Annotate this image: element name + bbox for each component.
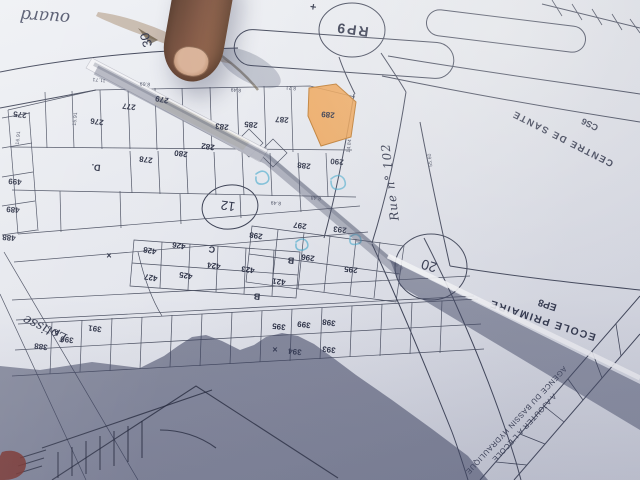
parcel-number: 424 bbox=[207, 260, 221, 270]
ecole-primaire-block: ECOLE PRIMAIRE EP8 bbox=[487, 280, 602, 344]
centre-de-sante-code: CS6 bbox=[580, 116, 600, 132]
dimension-label: 8.49 bbox=[270, 199, 281, 205]
parcel-number: 421 bbox=[272, 276, 286, 285]
parcel-number: 388 bbox=[34, 341, 48, 351]
mark-label: × bbox=[106, 252, 111, 261]
centre-de-sante-label: CENTRE DE SANTE bbox=[511, 108, 615, 167]
annotation-strip-text: A AJOUTER A L'ECOLE AGENCE DU BASSIN HYD… bbox=[463, 364, 578, 480]
dimension-label: 11.71 bbox=[92, 76, 106, 82]
dimension-label: 15.91 bbox=[73, 112, 79, 126]
parcel-number: 395 bbox=[272, 321, 286, 330]
annotation-line-2: AGENCE DU BASSIN HYDRAULIQUE bbox=[463, 364, 570, 477]
parcel-number: 296 bbox=[301, 252, 315, 262]
road-width-12: 12 bbox=[220, 199, 236, 214]
street-name-rue-102: Rue n° 102 bbox=[379, 142, 400, 221]
parcel-number: 394 bbox=[288, 346, 302, 355]
photo-of-cadastral-map: ouard + RP9 30 12 20 Rue n° 102 Lotisse … bbox=[0, 0, 640, 480]
parcel-number: 489 bbox=[6, 204, 20, 213]
dimension-label: 8.69 bbox=[139, 80, 150, 86]
parcel-number: 426 bbox=[172, 240, 187, 250]
handwritten-word: ouard bbox=[19, 6, 70, 26]
parcel-number: 298 bbox=[249, 230, 263, 240]
map-labels: ouard + RP9 30 12 20 Rue n° 102 Lotisse … bbox=[0, 0, 640, 480]
fingernail bbox=[171, 44, 212, 80]
mark-label: A bbox=[53, 327, 61, 337]
parcel-number: 425 bbox=[179, 270, 194, 280]
parcel-number: 290 bbox=[330, 156, 344, 165]
parcel-number: 288 bbox=[297, 160, 311, 169]
parcel-number: 488 bbox=[2, 232, 16, 241]
parcel-number: 499 bbox=[8, 176, 22, 185]
parcel-number: 282 bbox=[201, 141, 215, 151]
parcel-number: 427 bbox=[144, 272, 159, 282]
parcel-number: 276 bbox=[90, 116, 104, 126]
mark-label: D. bbox=[91, 162, 101, 172]
dimension-label: 16.91 bbox=[16, 131, 22, 145]
dimension-label: 8.21 bbox=[285, 84, 296, 90]
dimension-label: 14.84 bbox=[347, 139, 353, 153]
parcel-number: 297 bbox=[293, 220, 307, 230]
parcel-number: 295 bbox=[344, 264, 358, 273]
dimension-label: 55.60 bbox=[428, 153, 434, 167]
parcel-number: 423 bbox=[241, 264, 255, 274]
parcel-number: 391 bbox=[88, 323, 102, 333]
parcel-number: 280 bbox=[174, 148, 188, 158]
dimension-label: 8.48 bbox=[310, 194, 321, 200]
parcel-number: 393 bbox=[322, 344, 336, 353]
parcel-number: 275 bbox=[13, 109, 27, 118]
dimension-label: 8.49 bbox=[230, 86, 241, 92]
road-width-20: 20 bbox=[420, 257, 439, 275]
road-width-30: 30 bbox=[138, 31, 155, 49]
parcel-number: 390 bbox=[60, 334, 74, 344]
parcel-number: 277 bbox=[122, 101, 136, 110]
parcel-number: 398 bbox=[322, 317, 336, 327]
mark-label: B bbox=[253, 291, 260, 301]
annotation-line-1: A AJOUTER A L'ECOLE bbox=[471, 371, 578, 480]
parcel-number: 293 bbox=[333, 224, 347, 233]
parcel-number: 289 bbox=[321, 109, 335, 118]
parcel-number: 283 bbox=[215, 121, 229, 130]
parcel-number: 278 bbox=[139, 154, 153, 164]
parcel-number: 279 bbox=[155, 94, 170, 105]
mark-label: B bbox=[287, 255, 294, 265]
plus-mark: + bbox=[309, 2, 317, 14]
parcel-number: 287 bbox=[275, 115, 289, 124]
roundabout-label: RP9 bbox=[335, 21, 370, 39]
parcel-number: 428 bbox=[143, 245, 158, 255]
mark-label: × bbox=[272, 346, 277, 355]
mark-label: C bbox=[208, 244, 216, 254]
parcel-number: 285 bbox=[244, 119, 258, 128]
parcel-number: 399 bbox=[297, 319, 311, 329]
